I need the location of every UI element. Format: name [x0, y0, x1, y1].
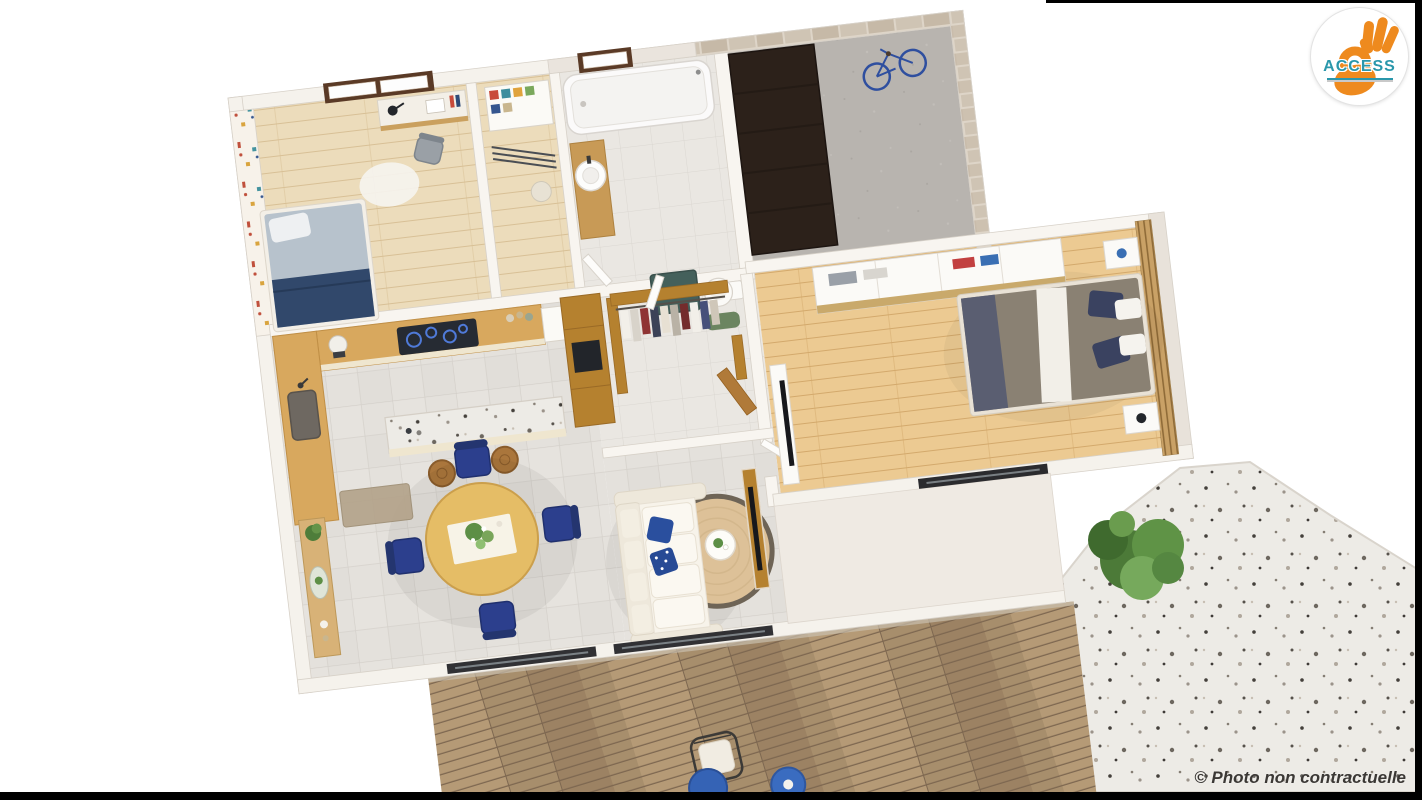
kitchen-sink — [287, 390, 320, 441]
logo-text: ACCESS — [1311, 58, 1408, 76]
floorplan-svg — [0, 0, 1422, 800]
logo-underline — [1327, 78, 1393, 80]
top-black-bar — [1046, 0, 1422, 3]
kids-bed — [260, 199, 380, 333]
watermark-text: © Photo non contractuelle — [1194, 768, 1406, 788]
doormat — [339, 483, 413, 527]
house-group — [228, 0, 1232, 800]
ok-hand-icon — [1311, 8, 1408, 105]
access-logo: ACCESS — [1311, 8, 1408, 105]
right-black-bar — [1415, 0, 1422, 800]
floorplan-render: ACCESS © Photo non contractuelle — [0, 0, 1422, 800]
double-bed — [956, 273, 1155, 416]
blue-pillow — [646, 516, 674, 544]
bottom-black-bar — [0, 792, 1422, 800]
